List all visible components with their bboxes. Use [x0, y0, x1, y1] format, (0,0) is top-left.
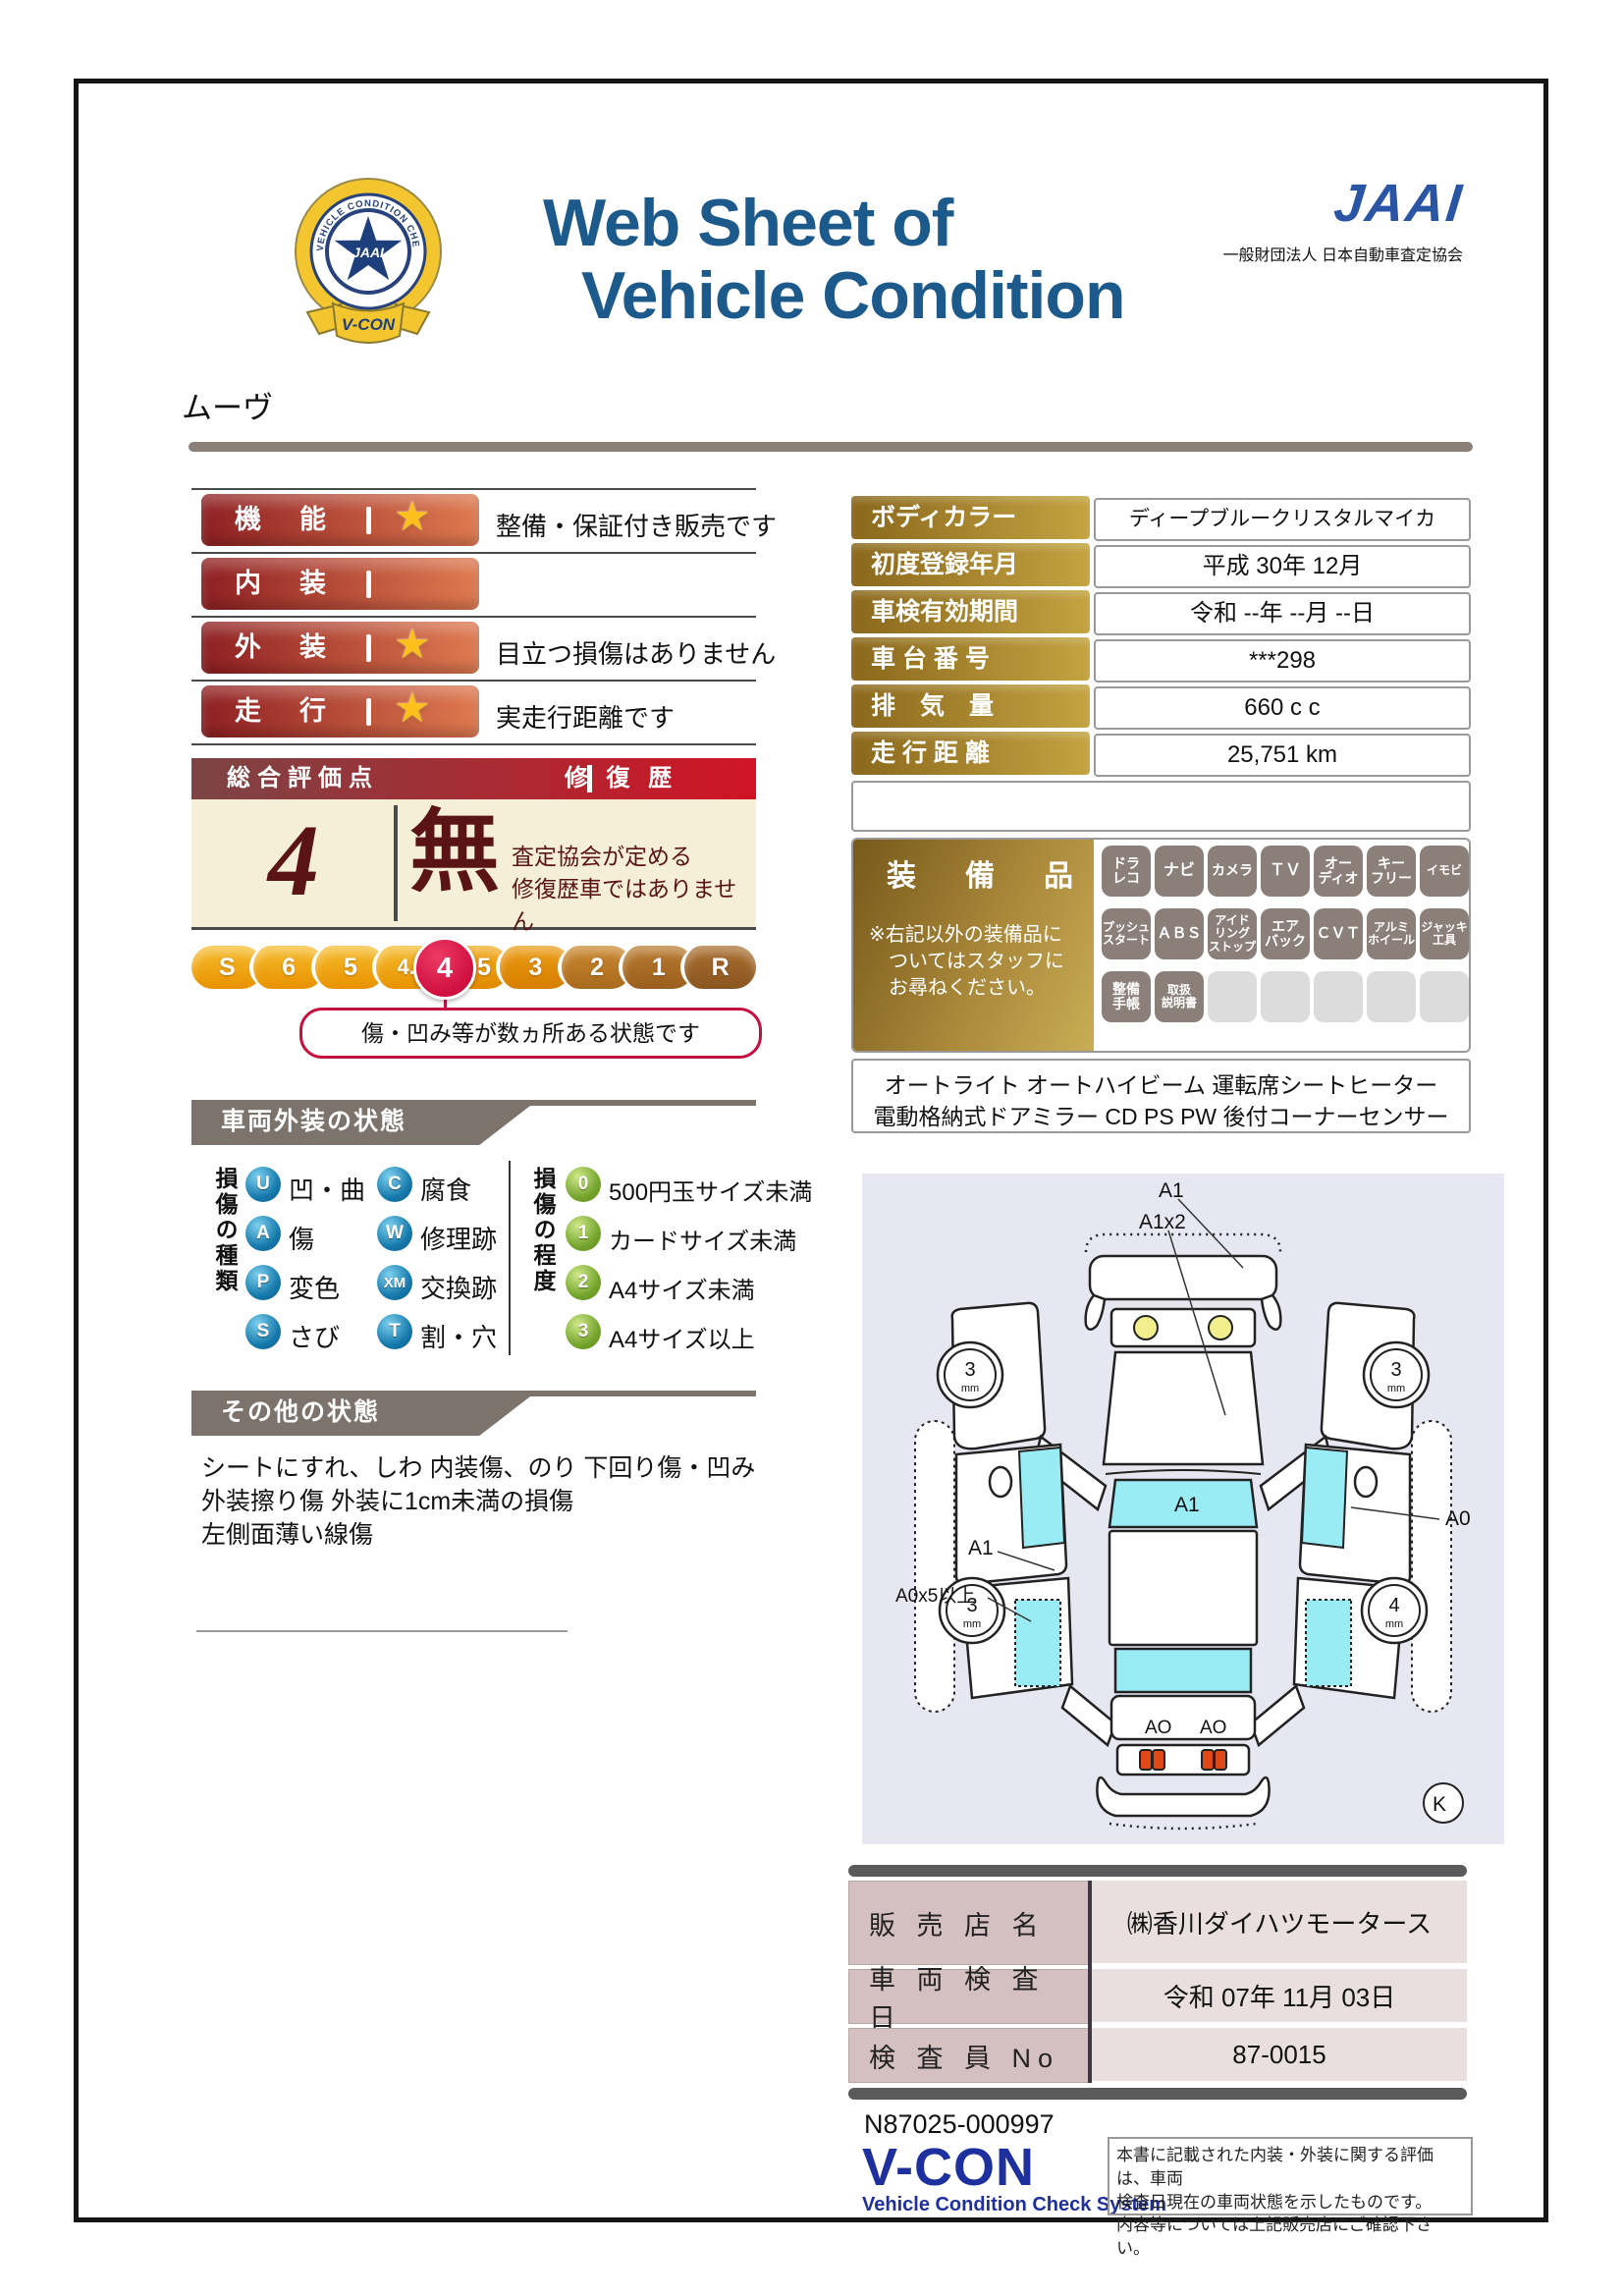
damage-type-label: 割・穴 [420, 1318, 497, 1354]
sheet-title-line2: Vehicle Condition [581, 257, 1125, 334]
damage-label-top1: A1 [1159, 1179, 1184, 1202]
damage-label-left2: A0x5以上 [895, 1585, 975, 1607]
tread-unit: mm [961, 1383, 979, 1394]
rating-note: 整備・保証付き販売です [496, 507, 777, 543]
svg-text:JAAI: JAAI [352, 245, 385, 260]
equipment-badge: イモビ [1420, 846, 1469, 897]
equipment-badge: ＴＶ [1261, 846, 1310, 897]
info-value-chassis-number: ***298 [1094, 639, 1471, 683]
equipment-note: ※右記以外の装備品に ついてはスタッフに お尋ねください。 [869, 922, 1064, 1002]
jaai-organization-name: 一般財団法人 日本自動車査定協会 [1119, 242, 1463, 265]
rating-bar-mileage: 走 行 ★ [201, 685, 479, 738]
star-icon: ★ [394, 620, 431, 668]
star-icon: ★ [394, 492, 431, 540]
divider [191, 743, 756, 745]
equipment-badge-empty [1314, 971, 1363, 1022]
divider [191, 552, 756, 554]
jaai-logo: JAAI [1215, 173, 1467, 234]
dealer-label-shop: 販 売 店 名 [848, 1881, 1090, 1965]
damage-type-icon-p: P [245, 1265, 281, 1300]
footer-disclaimer: 本書に記載された内装・外装に関する評価は、車両 検査日現在の車両状態を示したもの… [1108, 2137, 1473, 2215]
rating-label: 内 装 [235, 558, 332, 610]
dealer-value-shop: ㈱香川ダイハツモータース [1092, 1881, 1467, 1963]
damage-type-icon-xm: XM [377, 1265, 412, 1300]
damage-type-icon-u: U [245, 1167, 281, 1202]
damage-type-label: 腐食 [420, 1171, 471, 1207]
car-damage-diagram: A1 A1x2 A1 A1 A0x5以上 A0 AO AO K 3 mm 3 m… [862, 1174, 1504, 1844]
damage-degree-label: A4サイズ以上 [609, 1320, 755, 1354]
damage-type-title: 損傷の種類 [208, 1167, 242, 1294]
info-label-first-registration: 初度登録年月 [851, 543, 1090, 586]
vcon-badge-logo: VEHICLE CONDITION CHECK SYSTEM JAAI V-CO… [290, 175, 447, 371]
damage-degree-label: カードサイズ未満 [609, 1222, 796, 1256]
rating-bar-exterior: 外 装 ★ [201, 622, 479, 674]
star-icon: ★ [394, 683, 431, 732]
svg-text:V-CON: V-CON [342, 315, 396, 334]
key-label: K [1433, 1793, 1446, 1816]
info-value-displacement: 660 c c [1094, 686, 1471, 730]
tread-rear-left: 3 [966, 1595, 977, 1616]
divider [394, 805, 398, 921]
equipment-badge: アルミ ホイール [1367, 908, 1416, 959]
rating-label: 外 装 [235, 622, 332, 674]
equipment-badge: ＣＶＴ [1314, 908, 1363, 959]
divider [191, 680, 756, 682]
equipment-badge: ナビ [1155, 846, 1204, 897]
selected-grade-badge: 4 [413, 937, 476, 1000]
damage-type-label: 修理跡 [420, 1220, 497, 1256]
damage-label-right: A0 [1445, 1507, 1471, 1530]
divider [1088, 1881, 1092, 2083]
section-title: 車両外装の状態 [221, 1108, 406, 1135]
equipment-badge: プッシュ スタート [1102, 908, 1151, 959]
damage-label-rear1: AO [1145, 1718, 1171, 1738]
overall-score-header: 総合評価点 修 復 歴 [191, 758, 756, 799]
damage-degree-icon-2: 2 [566, 1265, 601, 1300]
divider [191, 488, 756, 490]
repair-history-value: 無 [409, 807, 500, 898]
equipment-badge: ドラ レコ [1102, 846, 1151, 897]
rating-note: 目立つ損傷はありません [496, 634, 776, 671]
section-title: その他の状態 [221, 1398, 380, 1426]
overall-score-title: 総合評価点 [227, 758, 379, 799]
rating-bar-interior: 内 装 [201, 558, 479, 610]
equipment-badge: ＡＢＳ [1155, 908, 1204, 959]
car-diagram-svg: A1 A1x2 A1 A1 A0x5以上 A0 AO AO K 3 mm 3 m… [862, 1174, 1504, 1844]
damage-type-icon-s: S [245, 1314, 281, 1349]
equipment-badge: オー ディオ [1314, 846, 1363, 897]
equipment-badge-empty [1367, 971, 1416, 1022]
damage-type-icon-a: A [245, 1216, 281, 1251]
damage-degree-icon-0: 0 [566, 1167, 601, 1202]
equipment-badge: ジャッキ 工具 [1420, 908, 1469, 959]
equipment-badge: 取扱 説明書 [1155, 971, 1204, 1022]
info-label-displacement: 排 気 量 [851, 684, 1090, 728]
damage-type-icon-c: C [377, 1167, 412, 1202]
info-value-inspection-validity: 令和 --年 --月 --日 [1094, 592, 1471, 635]
equipment-badge: エア バック [1261, 908, 1310, 959]
damage-degree-icon-1: 1 [566, 1216, 601, 1251]
dealer-table-top-bar [848, 1865, 1467, 1877]
repair-history-title: 修 復 歴 [486, 758, 756, 799]
vehicle-name: ムーヴ [182, 383, 273, 427]
divider-rule [189, 442, 1473, 452]
equipment-badge-grid: ドラ レコ ナビ カメラ ＴＶ オー ディオ キー フリー イモビ プッシュ ス… [1102, 846, 1473, 1022]
dealer-label-inspection-date: 車 両 検 査 日 [848, 1969, 1090, 2024]
equipment-badge: カメラ [1208, 846, 1257, 897]
equipment-badge: キー フリー [1367, 846, 1416, 897]
damage-type-label: 凹・曲 [289, 1171, 365, 1207]
grade-scale: S 6 5 4.5 3.5 3 2 1 R 4 [191, 946, 756, 989]
dealer-value-inspector-no: 87-0015 [1092, 2028, 1467, 2081]
dealer-label-inspector-no: 検 査 員 No [848, 2028, 1090, 2083]
pipe-divider [366, 571, 371, 598]
vcon-badge-icon: VEHICLE CONDITION CHECK SYSTEM JAAI V-CO… [290, 175, 447, 371]
equipment-badge: 整備 手帳 [1102, 971, 1151, 1022]
rating-bar-function: 機 能 ★ [201, 494, 479, 546]
dealer-value-inspection-date: 令和 07年 11月 03日 [1092, 1969, 1467, 2022]
other-condition-text: シートにすれ、しわ 内装傷、のり 下回り傷・凹み 外装擦り傷 外装に1cm未満の… [201, 1451, 755, 1552]
divider [509, 1161, 511, 1355]
equipment-badge-empty [1261, 971, 1310, 1022]
divider [196, 1630, 568, 1632]
info-value-mileage: 25,751 km [1094, 734, 1471, 777]
sheet-title-line1: Web Sheet of [543, 185, 952, 261]
overall-score-value: 4 [191, 799, 396, 927]
damage-label-left1: A1 [968, 1537, 994, 1559]
damage-type-label: さび [289, 1318, 340, 1354]
pipe-divider [366, 634, 371, 662]
info-label-body-color: ボディカラー [851, 496, 1090, 539]
info-label-inspection-validity: 車検有効期間 [851, 590, 1090, 633]
damage-type-label: 交換跡 [420, 1269, 497, 1305]
dealer-table-bottom-bar [848, 2088, 1467, 2100]
tread-rear-right: 4 [1388, 1595, 1399, 1616]
tread-unit: mm [1387, 1383, 1405, 1394]
damage-label-windshield: A1 [1174, 1494, 1200, 1516]
damage-label-rear2: AO [1200, 1718, 1226, 1738]
pipe-divider [366, 507, 371, 534]
damage-degree-title: 損傷の程度 [526, 1167, 560, 1294]
pipe-divider [366, 698, 371, 726]
sheet-code: N87025-000997 [864, 2109, 1055, 2140]
equipment-badge-empty [1208, 971, 1257, 1022]
equipment-title-panel: 装 備 品 ※右記以外の装備品に ついてはスタッフに お尋ねください。 [853, 840, 1094, 1051]
equipment-badge: アイド リング ストップ [1208, 908, 1257, 959]
equipment-extra-box: オートライト オートハイビーム 運転席シートヒーター 電動格納式ドアミラー CD… [851, 1059, 1471, 1133]
info-label-chassis-number: 車 台 番 号 [851, 637, 1090, 681]
info-value-body-color: ディープブルークリスタルマイカ [1094, 498, 1471, 541]
equipment-extra-line1: オートライト オートハイビーム 運転席シートヒーター [853, 1066, 1469, 1100]
rating-label: 走 行 [235, 685, 332, 738]
damage-type-label: 傷 [289, 1220, 314, 1256]
rating-note: 実走行距離です [496, 698, 675, 735]
grade-segment: R [680, 946, 756, 989]
damage-label-top2: A1x2 [1139, 1211, 1186, 1233]
damage-type-icon-t: T [377, 1314, 412, 1349]
equipment-badge-empty [1420, 971, 1469, 1022]
damage-degree-label: A4サイズ未満 [609, 1271, 755, 1305]
equipment-title: 装 備 品 [887, 851, 1083, 895]
tread-unit: mm [1385, 1618, 1403, 1630]
tread-unit: mm [963, 1618, 981, 1630]
info-value-first-registration: 平成 30年 12月 [1094, 545, 1471, 588]
rating-label: 機 能 [235, 494, 332, 546]
grade-description-bubble: 傷・凹み等が数ヵ所ある状態です [299, 1008, 762, 1059]
damage-degree-label: 500円玉サイズ未満 [609, 1173, 812, 1207]
vcon-logo: V-CON [862, 2137, 1035, 2198]
vehicle-condition-sheet: VEHICLE CONDITION CHECK SYSTEM JAAI V-CO… [0, 0, 1623, 2296]
divider [191, 616, 756, 618]
overall-score-box: 総合評価点 修 復 歴 4 無 査定協会が定める 修復歴車ではありません [191, 758, 756, 927]
info-empty-row [851, 781, 1471, 832]
pipe-divider [587, 765, 592, 793]
damage-type-label: 変色 [289, 1269, 340, 1305]
tread-front-left: 3 [964, 1359, 975, 1381]
equipment-extra-line2: 電動格納式ドアミラー CD PS PW 後付コーナーセンサー [853, 1098, 1469, 1131]
damage-degree-icon-3: 3 [566, 1314, 601, 1349]
info-label-mileage: 走 行 距 離 [851, 732, 1090, 775]
tread-front-right: 3 [1390, 1359, 1401, 1381]
repair-history-note: 査定協会が定める 修復歴車ではありません [512, 841, 756, 938]
damage-type-icon-w: W [377, 1216, 412, 1251]
